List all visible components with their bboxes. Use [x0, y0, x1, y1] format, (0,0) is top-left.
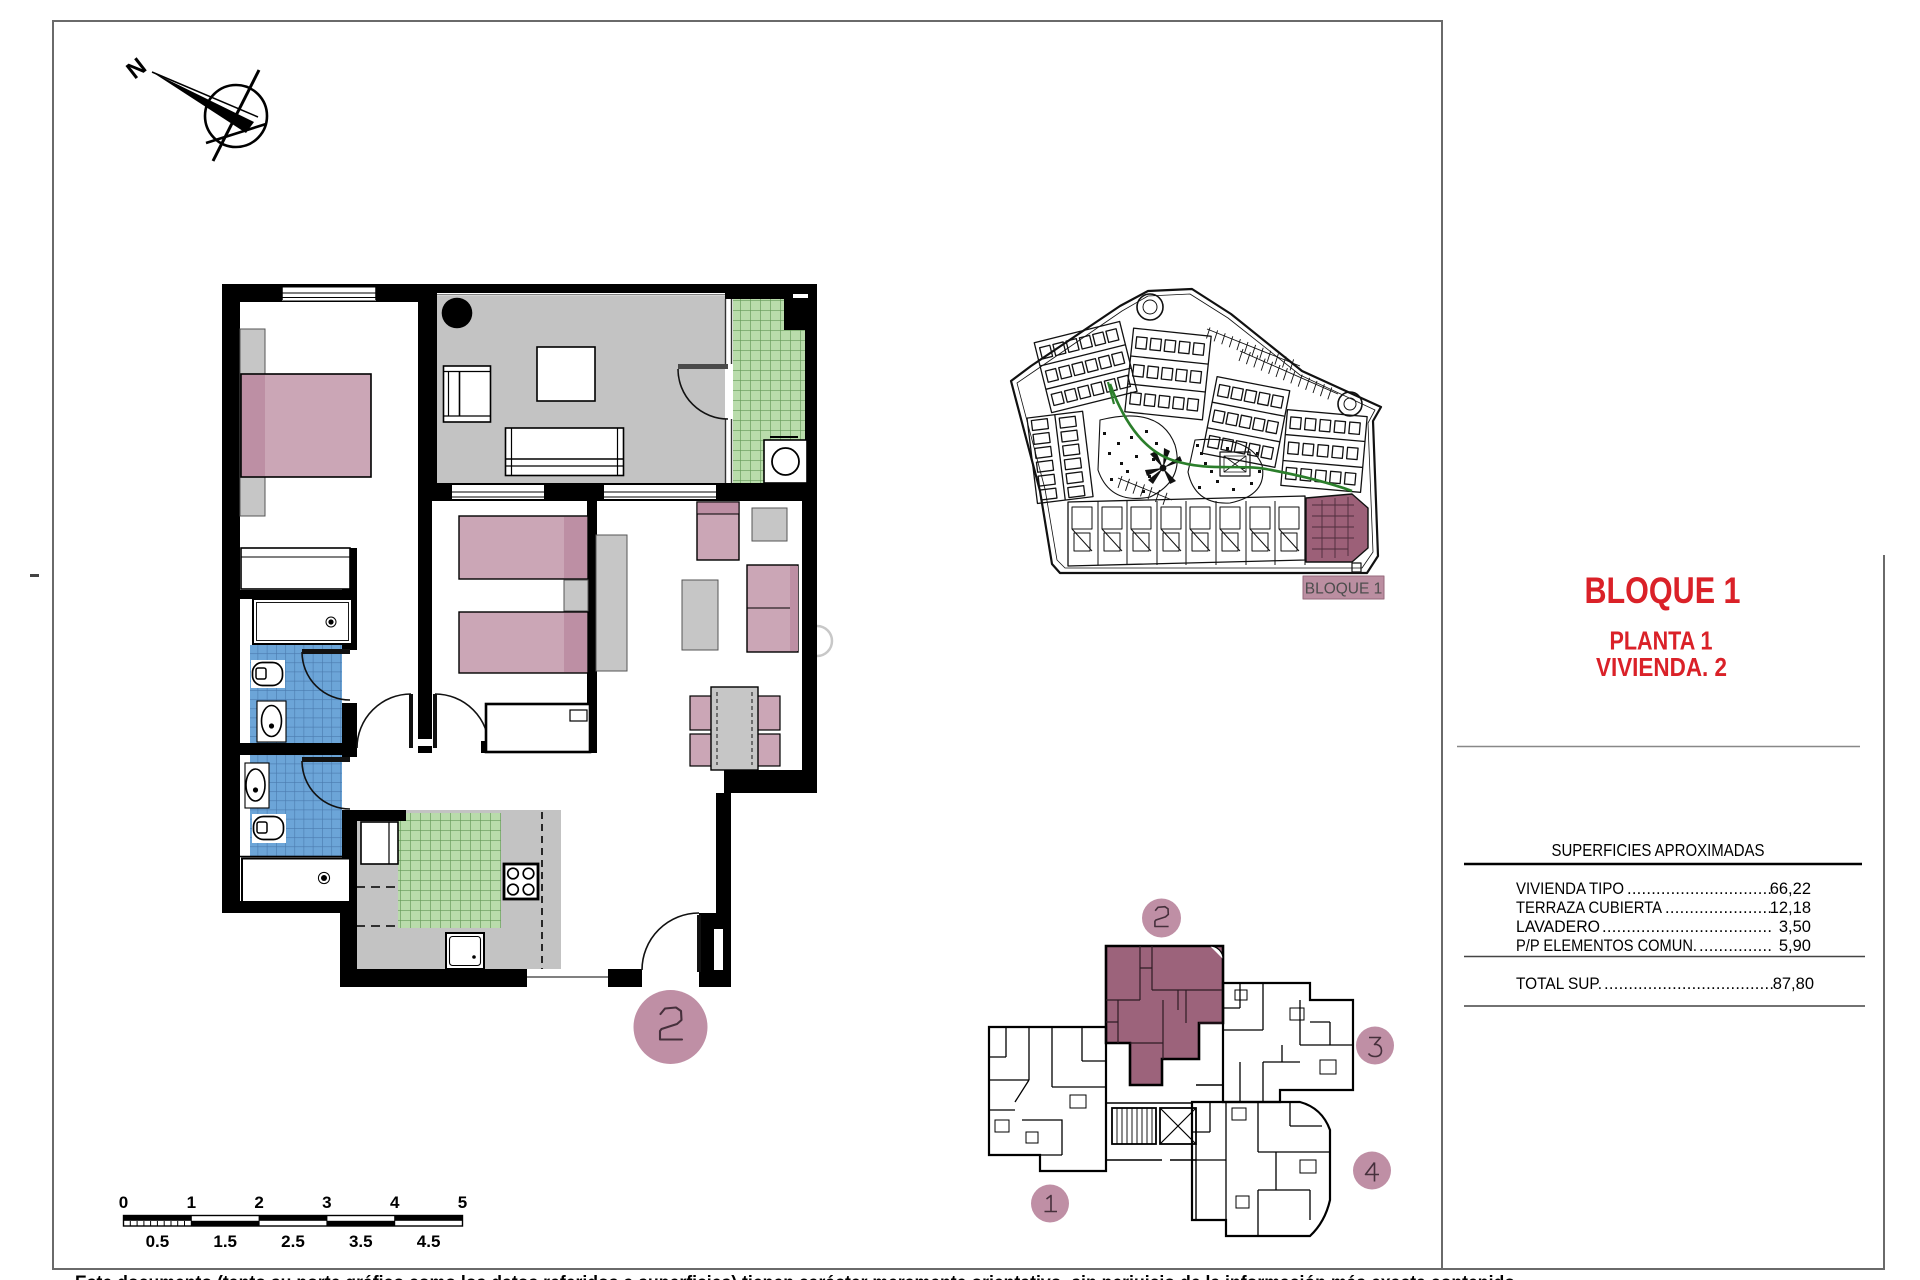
svg-text:VIVIENDA. 2: VIVIENDA. 2 [1596, 654, 1727, 682]
svg-text:87,80: 87,80 [1773, 975, 1814, 993]
svg-text:2.5: 2.5 [281, 1232, 305, 1251]
svg-text:LAVADERO: LAVADERO [1516, 918, 1600, 936]
svg-text:2: 2 [254, 1193, 263, 1212]
svg-text:3,50: 3,50 [1779, 918, 1811, 936]
svg-text:TOTAL SUP.: TOTAL SUP. [1516, 975, 1602, 993]
svg-text:P/P ELEMENTOS COMUN.: P/P ELEMENTOS COMUN. [1516, 937, 1697, 955]
svg-text:PLANTA 1: PLANTA 1 [1610, 628, 1713, 656]
svg-text:1: 1 [187, 1193, 196, 1212]
svg-text:BLOQUE 1: BLOQUE 1 [1305, 581, 1383, 598]
svg-text:3.5: 3.5 [349, 1232, 373, 1251]
svg-text:SUPERFICIES APROXIMADAS: SUPERFICIES APROXIMADAS [1552, 840, 1765, 860]
svg-text:TERRAZA CUBIERTA: TERRAZA CUBIERTA [1516, 899, 1662, 917]
svg-text:1.5: 1.5 [213, 1232, 237, 1251]
svg-text:0: 0 [119, 1193, 128, 1212]
svg-text:3: 3 [322, 1193, 331, 1212]
svg-text:12,18: 12,18 [1770, 899, 1811, 917]
svg-text:5,90: 5,90 [1779, 937, 1811, 955]
svg-text:66,22: 66,22 [1770, 880, 1811, 898]
svg-text:4.5: 4.5 [417, 1232, 441, 1251]
svg-text:Este documento (tanto su porte: Este documento (tanto su porte gráfico c… [75, 1272, 1515, 1280]
svg-text:...............: ............... [1699, 937, 1772, 955]
svg-text:VIVIENDA TIPO: VIVIENDA TIPO [1516, 880, 1624, 898]
svg-text:......................: ...................... [1665, 899, 1772, 917]
svg-text:5: 5 [458, 1193, 467, 1212]
svg-text:4: 4 [390, 1193, 400, 1212]
svg-text:..............................: ................................... [1604, 975, 1774, 993]
svg-text:BLOQUE 1: BLOQUE 1 [1585, 570, 1741, 611]
svg-text:0.5: 0.5 [146, 1232, 170, 1251]
svg-text:..............................: .............................. [1627, 880, 1772, 898]
svg-text:..............................: ................................... [1602, 918, 1772, 936]
